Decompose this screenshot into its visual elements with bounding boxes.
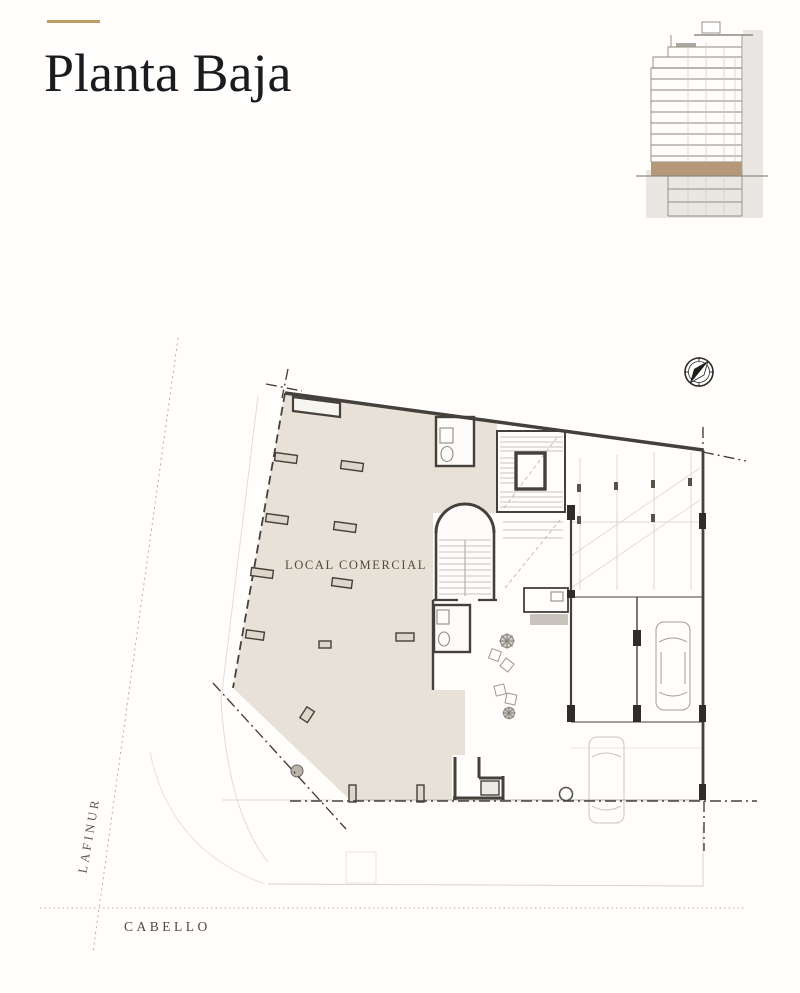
area-label: LOCAL COMERCIAL: [285, 558, 427, 572]
brochure-page: Planta Baja: [0, 0, 800, 993]
plant-icon: [503, 707, 516, 720]
north-compass-icon: [684, 357, 714, 387]
car-entering: [589, 737, 624, 823]
floor-plan: LOCAL COMERCIAL LAFINUR CABELLO: [0, 0, 800, 993]
street-label-lafinur: LAFINUR: [76, 796, 103, 874]
plant-icon: [499, 633, 515, 649]
street-label-cabello: CABELLO: [124, 919, 211, 934]
lobby-furniture: [489, 614, 568, 720]
car-parked: [656, 622, 690, 710]
